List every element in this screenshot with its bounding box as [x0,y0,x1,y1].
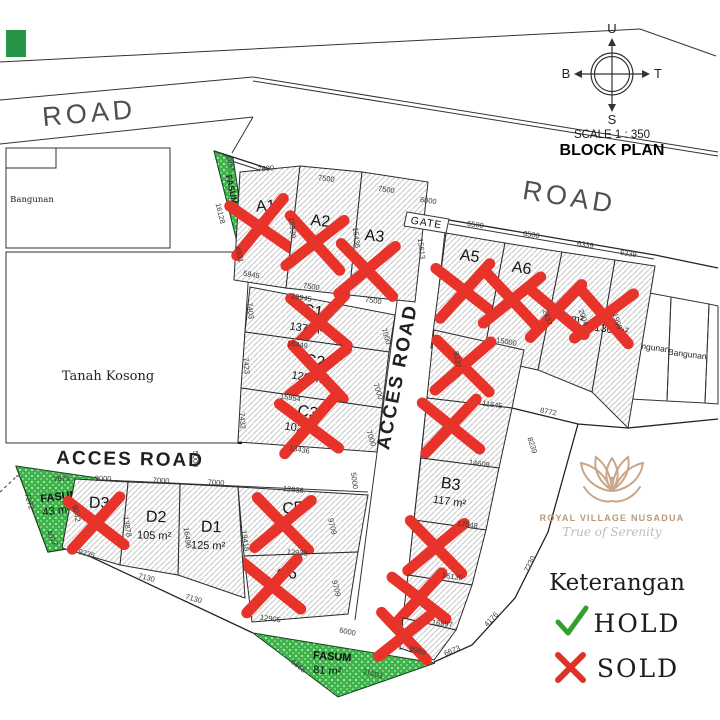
logo-brand: ROYAL VILLAGE NUSADUA [540,513,685,523]
compass-west-label: B [562,66,571,81]
hold-check-icon [558,608,586,633]
block-plan-drawing: Bangunan Tanah Kosong Bangunan Bangunan … [0,0,720,720]
green-marker [6,30,26,57]
dimension-label: 6500 [522,229,540,240]
legend-title: Keterangan [549,570,685,596]
legend: Keterangan HOLD SOLD [549,570,685,683]
dimension-label: 6673 [443,643,462,658]
dimension-label: 7432 [237,412,248,430]
dimension-label: 6339 [576,239,594,250]
lotus-icon [581,457,643,501]
dimension-label: 5000 [349,472,360,490]
compass-north-label: U [607,21,616,36]
parcel-label: Bangunan [668,347,708,362]
svg-text:125 m²: 125 m² [191,539,226,552]
parcel-bangunan-right-2: Bangunan [667,297,718,404]
dimension-label: 7500 [257,163,274,173]
dimension-label: 4176 [482,610,500,628]
dimension-label: 12905 [259,613,281,625]
dimension-label: 7500 [364,295,382,306]
fasum-area: 81 m² [313,664,342,678]
sold-x-legend-icon [558,655,583,680]
block-plan-page: Bangunan Tanah Kosong Bangunan Bangunan … [0,0,720,720]
parcel-tanah-kosong: Tanah Kosong [6,252,250,443]
parcel-bangunan-left: Bangunan [6,148,170,248]
dimension-label: 9000 [95,474,112,484]
svg-text:A3: A3 [364,227,385,246]
dimension-label: 8239 [526,436,540,455]
svg-text:D1: D1 [201,519,222,537]
parcel-label: Tanah Kosong [62,369,154,384]
plan-title: BLOCK PLAN [560,142,665,159]
svg-text:A5: A5 [459,247,481,267]
svg-text:A6: A6 [511,259,533,279]
scale-label: SCALE 1 : 350 [574,129,650,141]
legend-hold-label: HOLD [594,609,681,638]
dimension-label: 6339 [619,248,637,259]
dimension-label: 12938 [286,547,308,558]
dimension-label: 7403 [245,302,256,320]
dimension-label: 7423 [241,357,252,375]
dimension-label: 7130 [137,571,155,584]
dimension-label: 5000 [191,451,200,468]
logo-tagline: True of Serenity [562,525,661,539]
dimension-label: 7130 [184,592,203,605]
compass-east-label: T [654,66,662,81]
svg-text:B3: B3 [440,475,462,495]
dimension-label: 7000 [208,478,225,488]
dimension-label: 7000 [153,476,170,486]
dimension-label: 7671 [53,473,70,483]
road-label-top-right: ROAD [521,175,619,219]
compass-south-label: S [608,112,617,127]
compass-rose [574,38,650,112]
logo: ROYAL VILLAGE NUSADUA True of Serenity [540,457,685,539]
legend-sold-label: SOLD [597,654,679,683]
svg-text:D2: D2 [146,509,167,527]
dimension-label: 6500 [466,219,484,230]
dimension-label: 6000 [338,625,356,637]
svg-text:105 m²: 105 m² [137,529,172,542]
access-road-horizontal-label: ACCES ROAD [56,448,204,472]
road-label-top-left: ROAD [41,94,137,132]
parcel-label: Bangunan [10,195,54,205]
plot-C5: C5 [238,487,368,556]
